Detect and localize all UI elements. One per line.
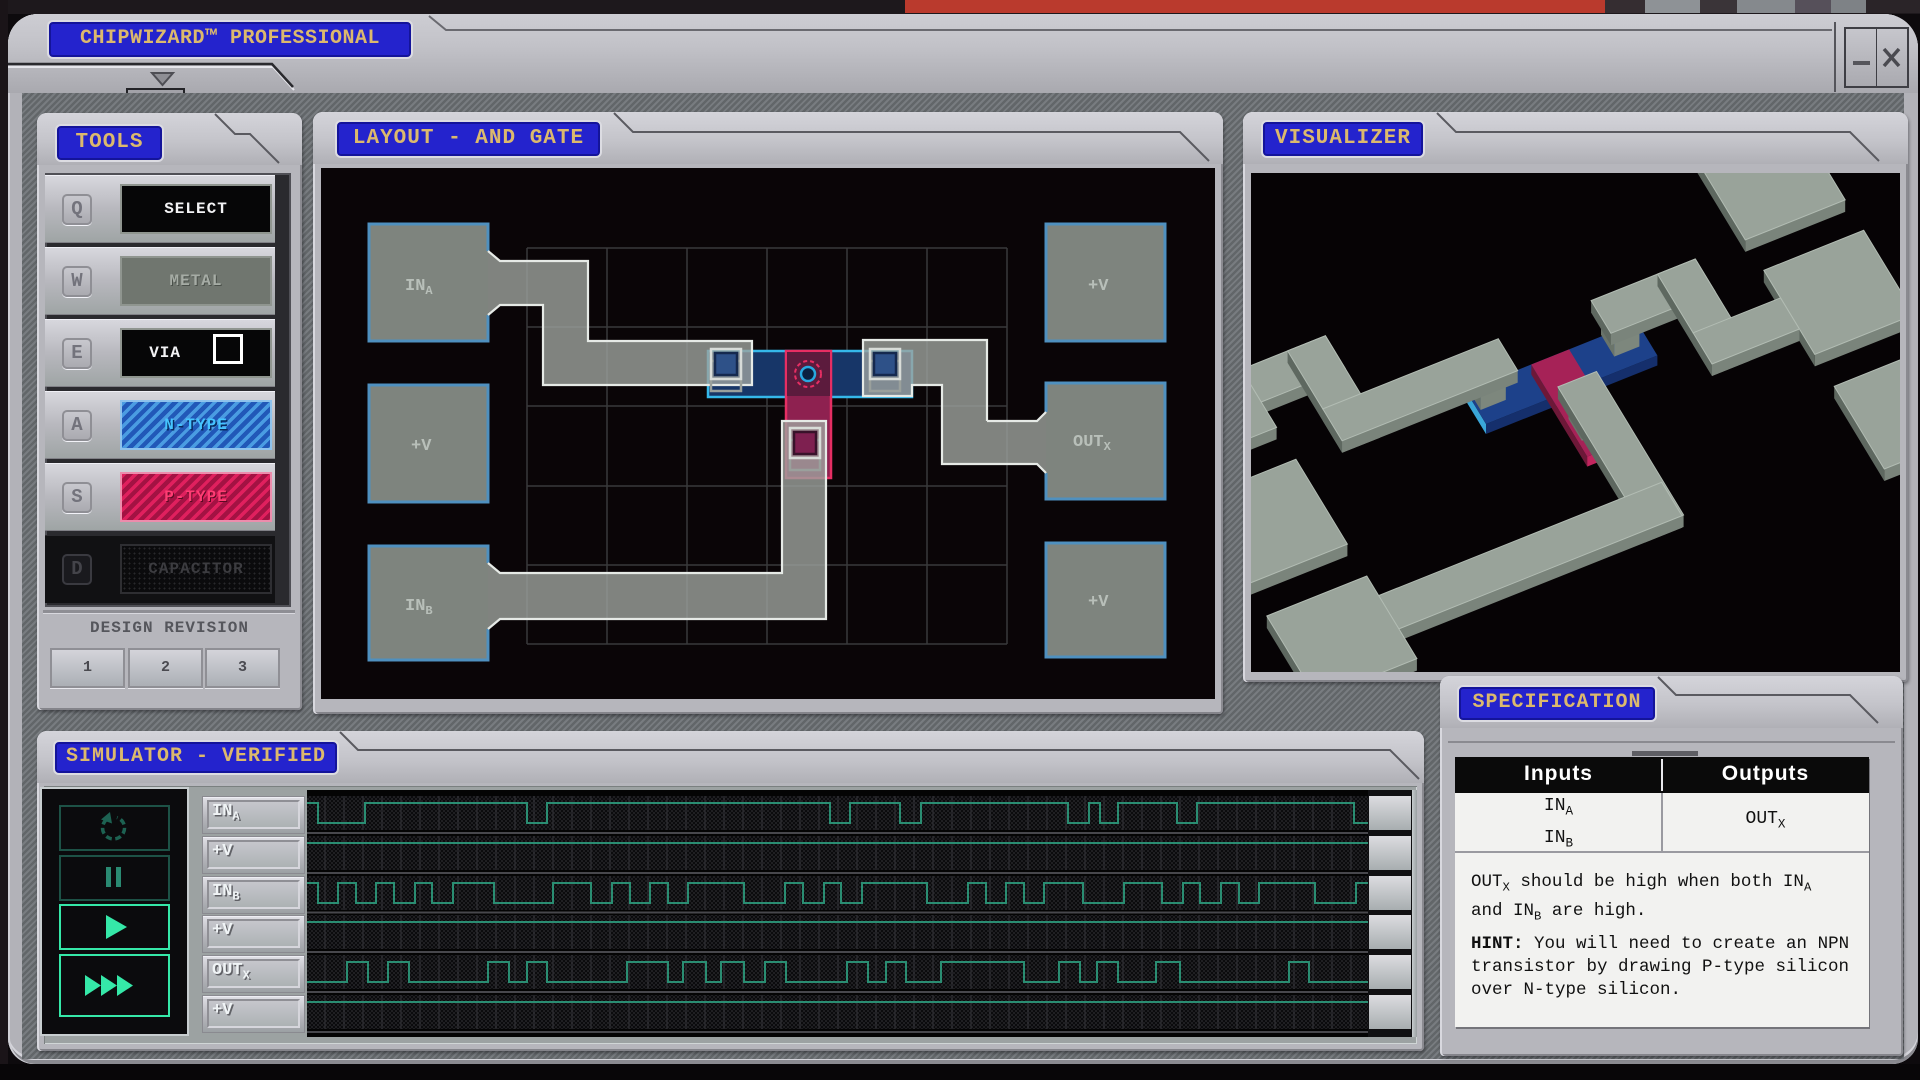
svg-text:+V: +V [1088,593,1109,612]
svg-text:+V: +V [1088,277,1109,296]
svg-text:+V: +V [411,437,432,456]
